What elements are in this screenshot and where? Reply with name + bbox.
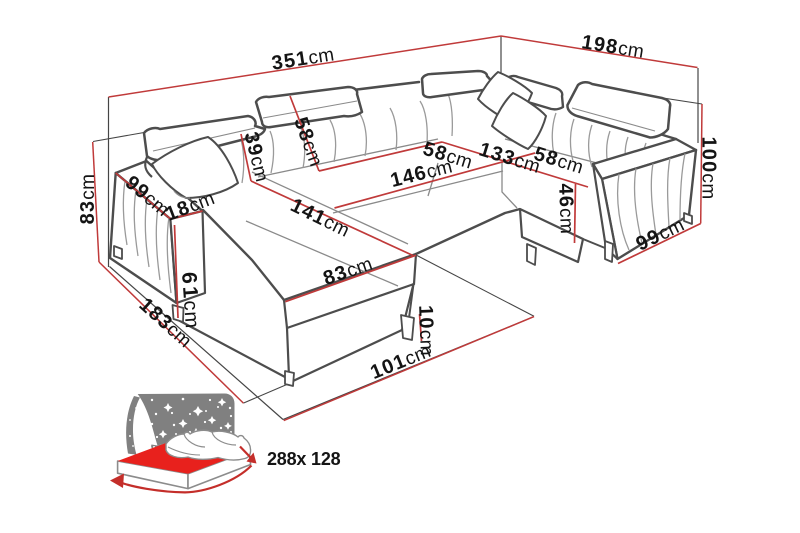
svg-text:83cm: 83cm	[77, 174, 99, 225]
svg-text:288x 128: 288x 128	[267, 449, 341, 469]
svg-text:10cm: 10cm	[414, 305, 438, 357]
svg-text:46cm: 46cm	[554, 183, 578, 235]
svg-text:61cm: 61cm	[177, 271, 204, 329]
svg-text:100cm: 100cm	[698, 136, 720, 199]
